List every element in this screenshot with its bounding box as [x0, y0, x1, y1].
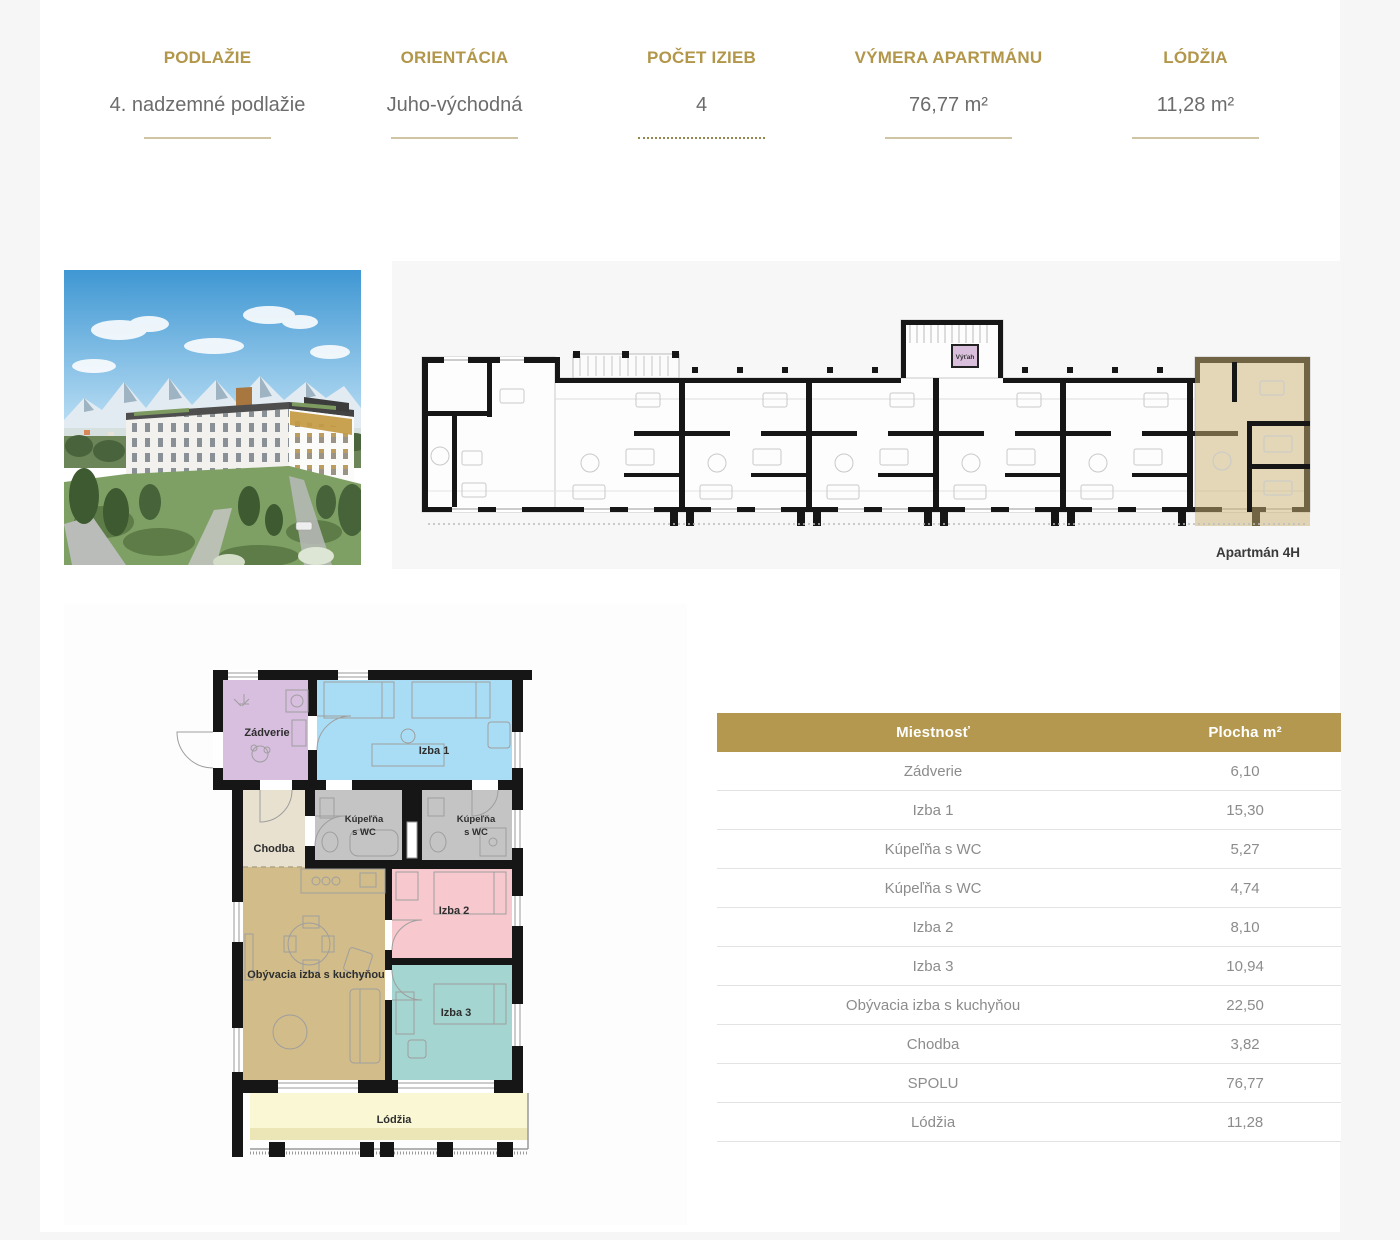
summary-column-pocet-izieb: POČET IZIEB 4 [578, 48, 825, 139]
area-cell: 3,82 [1149, 1025, 1341, 1064]
room-name-cell: Obývacia izba s kuchyňou [717, 986, 1149, 1025]
elevator-label: Výťah [956, 354, 975, 361]
area-cell: 6,10 [1149, 752, 1341, 791]
divider [391, 137, 518, 139]
apartment-4h-label: Apartmán 4H [1216, 545, 1300, 560]
area-cell: 11,28 [1149, 1103, 1341, 1142]
table-row: Obývacia izba s kuchyňou22,50 [717, 986, 1341, 1025]
room-name-cell: Izba 1 [717, 791, 1149, 830]
summary-label: VÝMERA APARTMÁNU [825, 48, 1072, 68]
table-row: Izba 28,10 [717, 908, 1341, 947]
label-kupelna1-line2: s WC [352, 827, 376, 838]
summary-value: Juho-východná [331, 94, 578, 117]
table-row: Kúpeľňa s WC5,27 [717, 830, 1341, 869]
summary-value: 11,28 m² [1072, 94, 1319, 117]
floor-overview-drawing: Výťah Apartmán 4H [392, 261, 1341, 569]
room-chodba [243, 788, 305, 867]
room-name-cell: Kúpeľňa s WC [717, 830, 1149, 869]
summary-label: ORIENTÁCIA [331, 48, 578, 68]
label-kupelna2-line2: s WC [464, 827, 488, 838]
floor-overview-plan: Výťah Apartmán 4H [392, 261, 1341, 569]
room-izba1 [315, 676, 512, 783]
label-kupelna1-line1: Kúpeľňa [345, 814, 384, 825]
room-name-cell: Kúpeľňa s WC [717, 869, 1149, 908]
area-cell: 22,50 [1149, 986, 1341, 1025]
table-row: SPOLU76,77 [717, 1064, 1341, 1103]
area-cell: 8,10 [1149, 908, 1341, 947]
summary-value: 4. nadzemné podlažie [84, 94, 331, 117]
room-name-cell: Lódžia [717, 1103, 1149, 1142]
table-header-row: Miestnosť Plocha m² [717, 713, 1341, 752]
label-izba1: Izba 1 [419, 745, 450, 757]
apartment-floor-plan-drawing: Zádverie Izba 1 Chodba Kúpeľňa s WC Kúpe… [64, 604, 687, 1225]
room-name-cell: Zádverie [717, 752, 1149, 791]
divider [1132, 137, 1259, 139]
area-cell: 15,30 [1149, 791, 1341, 830]
summary-label: LÓDŽIA [1072, 48, 1319, 68]
table-header-miestnost: Miestnosť [717, 713, 1149, 752]
content-area: PODLAŽIE 4. nadzemné podlažie ORIENTÁCIA… [40, 0, 1340, 1232]
divider [638, 137, 765, 139]
room-name-cell: SPOLU [717, 1064, 1149, 1103]
room-name-cell: Izba 2 [717, 908, 1149, 947]
summary-value: 76,77 m² [825, 94, 1072, 117]
summary-column-podlazie: PODLAŽIE 4. nadzemné podlažie [84, 48, 331, 139]
apartment-floor-plan: Zádverie Izba 1 Chodba Kúpeľňa s WC Kúpe… [64, 604, 687, 1225]
summary-column-orientacia: ORIENTÁCIA Juho-východná [331, 48, 578, 139]
summary-column-lodzia: LÓDŽIA 11,28 m² [1072, 48, 1319, 139]
room-area-table: Miestnosť Plocha m² Zádverie6,10 Izba 11… [717, 713, 1341, 1142]
label-zadverie: Zádverie [244, 727, 289, 739]
area-cell: 10,94 [1149, 947, 1341, 986]
area-cell: 4,74 [1149, 869, 1341, 908]
summary-label: POČET IZIEB [578, 48, 825, 68]
apartment-4h-highlight [1195, 357, 1310, 526]
table-row: Zádverie6,10 [717, 752, 1341, 791]
building-photo [64, 270, 361, 565]
table-row: Izba 310,94 [717, 947, 1341, 986]
label-kupelna2-line1: Kúpeľňa [457, 814, 496, 825]
room-name-cell: Chodba [717, 1025, 1149, 1064]
table-row: Izba 115,30 [717, 791, 1341, 830]
table-row: Chodba3,82 [717, 1025, 1341, 1064]
label-izba2: Izba 2 [439, 905, 470, 917]
label-chodba: Chodba [254, 843, 296, 855]
divider [885, 137, 1012, 139]
summary-column-vymera: VÝMERA APARTMÁNU 76,77 m² [825, 48, 1072, 139]
area-cell: 76,77 [1149, 1064, 1341, 1103]
room-name-cell: Izba 3 [717, 947, 1149, 986]
label-obyvacia: Obývacia izba s kuchyňou [247, 969, 385, 981]
table-row: Kúpeľňa s WC4,74 [717, 869, 1341, 908]
building-photo-render [64, 270, 361, 565]
label-izba3: Izba 3 [441, 1007, 472, 1019]
divider [144, 137, 271, 139]
summary-label: PODLAŽIE [84, 48, 331, 68]
area-cell: 5,27 [1149, 830, 1341, 869]
table-row: Lódžia11,28 [717, 1103, 1341, 1142]
apartment-summary-bar: PODLAŽIE 4. nadzemné podlažie ORIENTÁCIA… [84, 48, 1319, 158]
label-lodzia: Lódžia [377, 1114, 413, 1126]
table-header-plocha: Plocha m² [1149, 713, 1341, 752]
summary-value: 4 [578, 94, 825, 117]
